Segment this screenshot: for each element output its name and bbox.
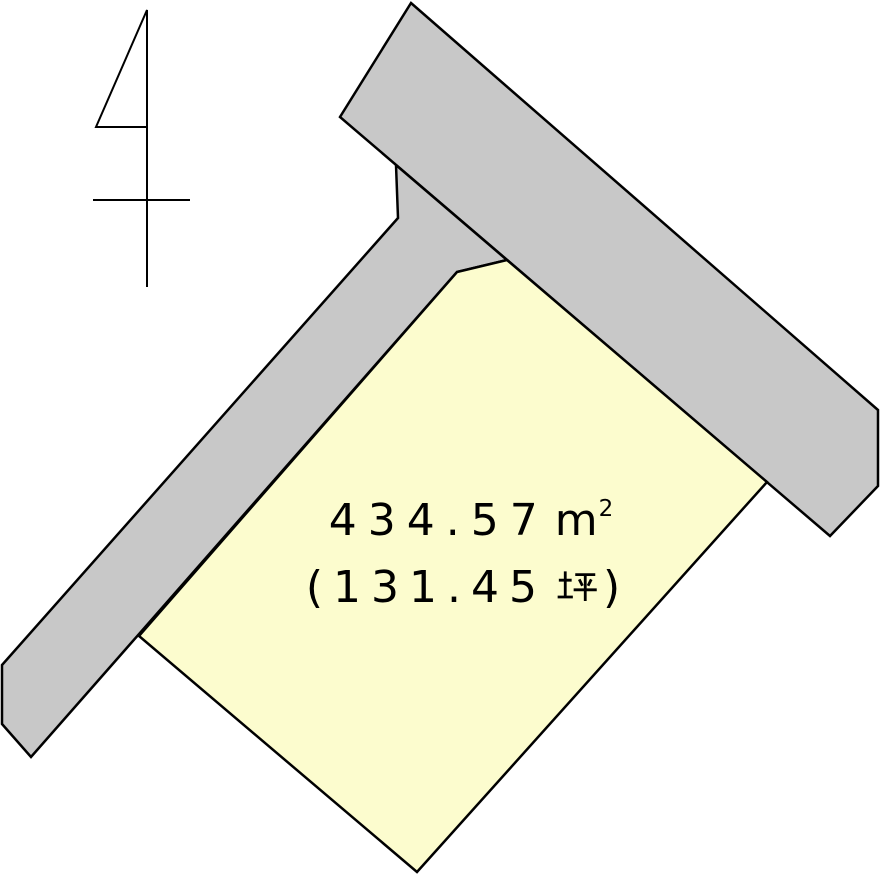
north-arrow-triangle	[96, 10, 147, 127]
tsubo-kanji-icon	[557, 565, 597, 605]
area-unit-m: m	[555, 495, 598, 546]
area-label: 434.57m2	[329, 487, 613, 543]
area-value: 434.57	[329, 495, 549, 546]
tsubo-value-suffix: )	[603, 562, 630, 613]
north-arrow-icon	[93, 10, 190, 287]
area-unit-exponent: 2	[599, 496, 614, 522]
tsubo-value-prefix: (131.45	[306, 562, 547, 613]
tsubo-label: (131.45 )	[306, 565, 630, 611]
land-plot-diagram	[0, 0, 881, 877]
